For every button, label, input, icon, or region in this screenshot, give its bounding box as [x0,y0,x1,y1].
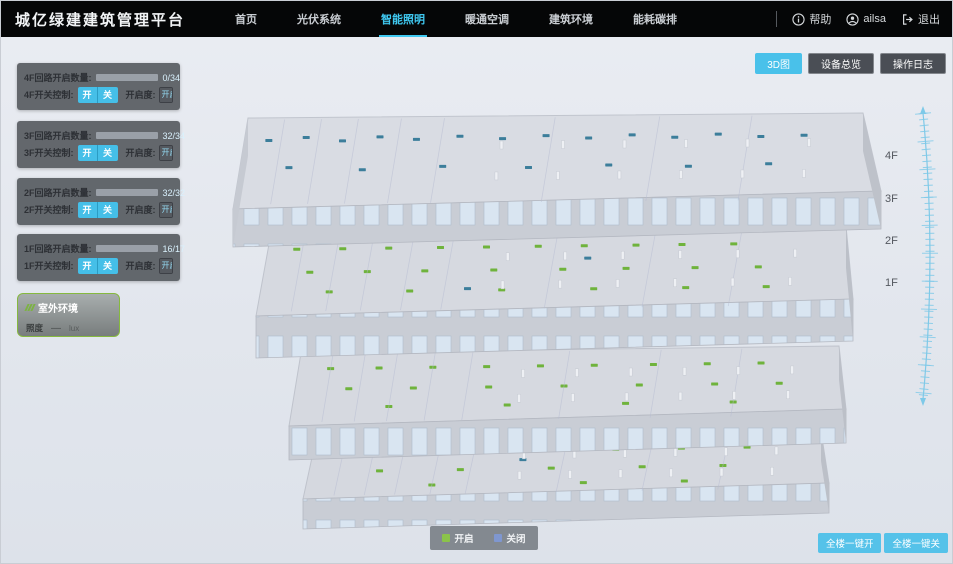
light-dot[interactable] [776,382,783,385]
light-dot[interactable] [730,242,737,245]
main-nav: 首页 光伏系统 智能照明 暖通空调 建筑环境 能耗碳排 [233,1,679,37]
openness-input[interactable] [160,203,173,217]
light-dot[interactable] [376,367,383,370]
light-dot[interactable] [306,271,313,274]
light-dot[interactable] [376,469,383,472]
light-dot[interactable] [765,162,772,165]
light-dot[interactable] [763,285,770,288]
light-dot[interactable] [685,165,692,168]
light-dot[interactable] [543,134,550,137]
openness-input[interactable] [160,146,173,160]
switch-control-label: 1F开关控制: [24,259,74,272]
light-dot[interactable] [633,244,640,247]
light-dot[interactable] [584,257,591,260]
user-icon [846,13,859,26]
nav-energy-carbon[interactable]: 能耗碳排 [631,1,679,37]
light-dot[interactable] [605,164,612,167]
light-dot[interactable] [591,364,598,367]
light-dot[interactable] [711,383,718,386]
light-dot[interactable] [339,139,346,142]
light-dot[interactable] [636,384,643,387]
circuit-progress-bar [96,189,158,196]
light-dot[interactable] [303,136,310,139]
floor-card-3f: 3F回路开启数量: 32/34 3F开关控制: 开 关 开启度: % [17,121,180,168]
circuit-progress-bar [96,74,158,81]
switch-on-button[interactable]: 开 [78,145,98,161]
light-dot[interactable] [499,137,506,140]
logout-icon [901,13,914,26]
user-menu[interactable]: ailsa [846,13,886,26]
light-dot[interactable] [682,286,689,289]
circuit-count-value: 32/32 [163,188,186,198]
light-dot[interactable] [639,465,646,468]
circuit-count-value: 0/34 [163,73,181,83]
info-icon [792,13,805,26]
light-dot[interactable] [755,265,762,268]
switch-on-button[interactable]: 开 [78,202,98,218]
all-off-button[interactable]: 全楼一键关 [884,533,948,553]
switch-on-button[interactable]: 开 [78,87,98,103]
light-dot[interactable] [456,135,463,138]
openness-label: 开启度: [126,203,156,216]
light-dot[interactable] [650,363,657,366]
nav-building-env[interactable]: 建筑环境 [547,1,595,37]
light-dot[interactable] [464,287,471,290]
light-dot[interactable] [490,269,497,272]
nav-hvac[interactable]: 暖通空调 [463,1,511,37]
switch-off-button[interactable]: 关 [98,202,118,218]
view-toolbar: 3D图 设备总览 操作日志 [755,53,946,74]
light-dot[interactable] [439,165,446,168]
light-dot[interactable] [622,402,629,405]
light-dot[interactable] [692,266,699,269]
app-title: 城亿绿建建筑管理平台 [15,9,185,30]
building-floor-2f[interactable] [289,346,846,460]
light-dot[interactable] [339,247,346,250]
user-name: ailsa [863,13,886,25]
light-dot[interactable] [559,268,566,271]
floor-card-2f: 2F回路开启数量: 32/32 2F开关控制: 开 关 开启度: % [17,178,180,225]
logout-button[interactable]: 退出 [901,11,940,27]
building-floor-3f[interactable] [256,226,853,358]
circuit-count-label: 2F回路开启数量: [24,186,92,199]
switch-on-button[interactable]: 开 [78,258,98,274]
light-dot[interactable] [285,166,292,169]
device-overview-button[interactable]: 设备总览 [808,53,874,74]
illuminance-label: 照度 [26,322,43,334]
openness-label: 开启度: [126,88,156,101]
light-dot[interactable] [590,287,597,290]
outdoor-env-title: 室外环境 [38,300,78,315]
light-dot[interactable] [406,289,413,292]
view-3d-button[interactable]: 3D图 [755,53,802,74]
light-dot[interactable] [359,168,366,171]
all-on-button[interactable]: 全楼一键开 [818,533,882,553]
light-dot[interactable] [681,480,688,483]
floor-scale-slider[interactable] [899,105,949,407]
nav-home[interactable]: 首页 [233,1,259,37]
light-dot[interactable] [293,248,300,251]
light-dot[interactable] [377,135,384,138]
light-dot[interactable] [345,387,352,390]
light-dot[interactable] [537,364,544,367]
legend-on: 开启 [441,531,473,545]
light-dot[interactable] [757,135,764,138]
light-dot[interactable] [548,467,555,470]
light-dot[interactable] [671,136,678,139]
light-dot[interactable] [385,247,392,250]
nav-smart-lighting[interactable]: 智能照明 [379,1,427,37]
switch-off-button[interactable]: 关 [98,258,118,274]
openness-label: 开启度: [126,259,156,272]
legend-off-swatch [494,534,502,542]
lighting-legend: 开启 关闭 [429,526,537,550]
switch-control-label: 4F开关控制: [24,88,74,101]
circuit-count-label: 1F回路开启数量: [24,242,92,255]
help-button[interactable]: 帮助 [792,11,831,27]
switch-control-label: 3F开关控制: [24,146,74,159]
circuit-count-value: 32/34 [163,131,186,141]
operation-log-button[interactable]: 操作日志 [880,53,946,74]
legend-off: 关闭 [494,531,526,545]
circuit-progress-bar [96,245,158,252]
main-viewport: 4F回路开启数量: 0/34 4F开关控制: 开 关 开启度: % 3F回路开启… [1,37,953,564]
light-dot[interactable] [483,245,490,248]
outdoor-env-card: 室外环境 照度 — lux [17,293,120,337]
light-dot[interactable] [581,244,588,247]
light-dot[interactable] [758,362,765,365]
light-dot[interactable] [580,481,587,484]
slashes-icon [26,304,34,311]
light-dot[interactable] [585,136,592,139]
floor-card-1f: 1F回路开启数量: 16/17 1F开关控制: 开 关 开启度: % [17,234,180,281]
app-window: 城亿绿建建筑管理平台 首页 光伏系统 智能照明 暖通空调 建筑环境 能耗碳排 帮… [0,0,953,564]
circuit-progress-bar [96,132,158,139]
light-dot[interactable] [623,267,630,270]
illuminance-unit: lux [69,324,79,333]
switch-control-label: 2F开关控制: [24,203,74,216]
light-dot[interactable] [410,386,417,389]
circuit-count-value: 16/17 [163,244,186,254]
nav-pv-system[interactable]: 光伏系统 [295,1,343,37]
openness-label: 开启度: [126,146,156,159]
floor-card-4f: 4F回路开启数量: 0/34 4F开关控制: 开 关 开启度: % [17,63,180,110]
switch-off-button[interactable]: 关 [98,87,118,103]
light-dot[interactable] [704,362,711,365]
light-dot[interactable] [483,365,490,368]
legend-on-swatch [441,534,449,542]
light-dot[interactable] [485,385,492,388]
bottom-actions: 全楼一键开 全楼一键关 [818,533,948,553]
light-dot[interactable] [535,245,542,248]
light-dot[interactable] [265,139,272,142]
light-dot[interactable] [679,243,686,246]
light-dot[interactable] [525,166,532,169]
switch-off-button[interactable]: 关 [98,145,118,161]
building-3d-view[interactable] [216,97,916,564]
light-dot[interactable] [715,133,722,136]
light-dot[interactable] [421,269,428,272]
openness-input[interactable] [160,88,173,102]
light-dot[interactable] [504,403,511,406]
openness-input[interactable] [160,259,173,273]
header-right: 帮助 ailsa 退出 [776,11,940,27]
circuit-count-label: 4F回路开启数量: [24,71,92,84]
light-dot[interactable] [457,468,464,471]
light-dot[interactable] [629,133,636,136]
building-floor-4f[interactable] [233,113,881,247]
light-dot[interactable] [437,246,444,249]
light-dot[interactable] [801,134,808,137]
circuit-count-label: 3F回路开启数量: [24,129,92,142]
header-divider [776,11,777,27]
top-header: 城亿绿建建筑管理平台 首页 光伏系统 智能照明 暖通空调 建筑环境 能耗碳排 帮… [1,1,952,37]
illuminance-value: — [51,323,61,334]
light-dot[interactable] [413,138,420,141]
